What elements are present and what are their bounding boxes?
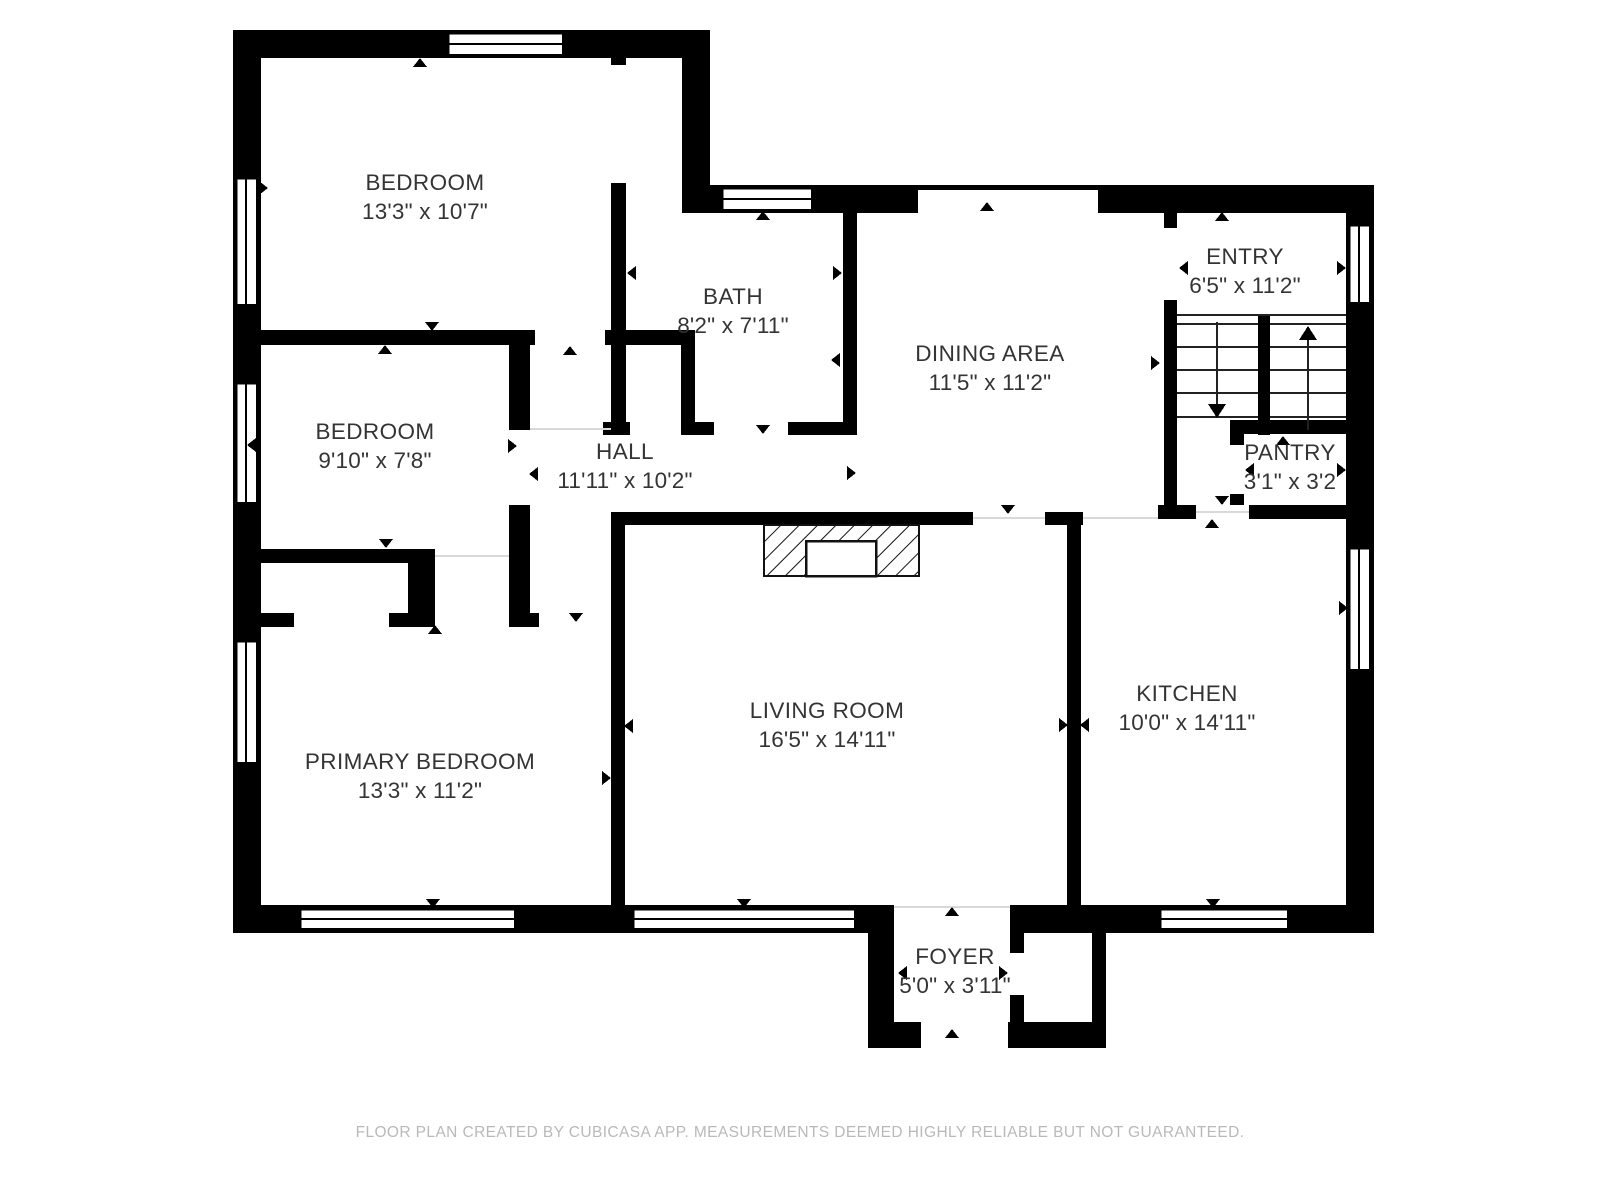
room-name: PANTRY (1244, 438, 1336, 467)
room-dimensions: 16'5" x 14'11" (750, 725, 904, 754)
room-name: BATH (677, 282, 789, 311)
room-dimensions: 3'1" x 3'2 (1244, 467, 1336, 496)
fireplace (764, 525, 919, 576)
room-dimensions: 13'3" x 11'2" (305, 776, 535, 805)
room-name: DINING AREA (915, 339, 1064, 368)
room-label-bath: BATH 8'2" x 7'11" (677, 282, 789, 340)
room-name: LIVING ROOM (750, 696, 904, 725)
floor-plan-drawing (0, 0, 1600, 1200)
room-dimensions: 11'5" x 11'2" (915, 368, 1064, 397)
room-name: HALL (557, 437, 692, 466)
room-dimensions: 5'0" x 3'11" (899, 971, 1011, 1000)
room-name: BEDROOM (362, 168, 488, 197)
floor-plan-page: BEDROOM 13'3" x 10'7" BATH 8'2" x 7'11" … (0, 0, 1600, 1200)
room-dimensions: 10'0" x 14'11" (1118, 708, 1255, 737)
room-label-primary-bedroom: PRIMARY BEDROOM 13'3" x 11'2" (305, 747, 535, 805)
room-dimensions: 8'2" x 7'11" (677, 311, 789, 340)
room-name: FOYER (899, 942, 1011, 971)
room-name: ENTRY (1189, 242, 1301, 271)
room-dimensions: 13'3" x 10'7" (362, 197, 488, 226)
room-label-pantry: PANTRY 3'1" x 3'2 (1244, 438, 1336, 496)
room-name: KITCHEN (1118, 679, 1255, 708)
room-label-living-room: LIVING ROOM 16'5" x 14'11" (750, 696, 904, 754)
room-label-bedroom-1: BEDROOM 13'3" x 10'7" (362, 168, 488, 226)
room-label-bedroom-2: BEDROOM 9'10" x 7'8" (315, 417, 434, 475)
room-dimensions: 6'5" x 11'2" (1189, 271, 1301, 300)
room-label-foyer: FOYER 5'0" x 3'11" (899, 942, 1011, 1000)
room-name: BEDROOM (315, 417, 434, 446)
room-name: PRIMARY BEDROOM (305, 747, 535, 776)
room-dimensions: 9'10" x 7'8" (315, 446, 434, 475)
opening-lines (435, 429, 1249, 907)
room-label-hall: HALL 11'11" x 10'2" (557, 437, 692, 495)
footer-disclaimer: FLOOR PLAN CREATED BY CUBICASA APP. MEAS… (0, 1124, 1600, 1142)
room-label-entry: ENTRY 6'5" x 11'2" (1189, 242, 1301, 300)
room-label-dining-area: DINING AREA 11'5" x 11'2" (915, 339, 1064, 397)
room-label-kitchen: KITCHEN 10'0" x 14'11" (1118, 679, 1255, 737)
room-dimensions: 11'11" x 10'2" (557, 466, 692, 495)
